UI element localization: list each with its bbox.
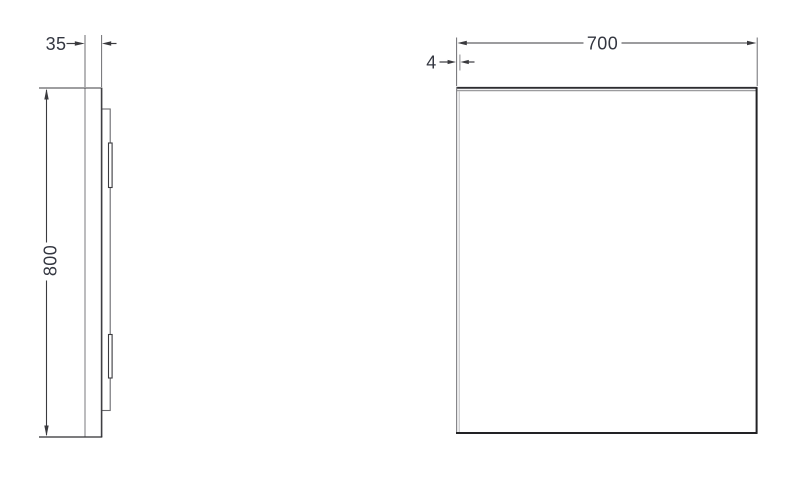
height-arrowhead-top [44, 89, 48, 100]
drawing-page: 35 800 [0, 0, 800, 483]
width-dimension-value: 700 [587, 34, 618, 54]
front-view [456, 87, 758, 434]
front-view-panel-face [457, 88, 757, 433]
height-dimension-value: 800 [41, 245, 61, 276]
side-view-mounting-clip-bottom [109, 335, 113, 379]
depth-arrowhead-right [102, 41, 111, 45]
height-dimension: 800 [41, 89, 61, 437]
height-arrowhead-bottom [44, 426, 48, 437]
edge-arrowhead-right [460, 60, 468, 64]
depth-dimension-value: 35 [46, 34, 67, 54]
edge-dimension-value: 4 [426, 53, 436, 73]
depth-dimension: 35 [46, 34, 117, 87]
width-arrowhead-left [457, 41, 466, 45]
depth-arrowhead-left [75, 41, 85, 45]
width-arrowhead-right [747, 41, 756, 45]
technical-drawing-canvas: 35 800 [0, 0, 800, 483]
edge-thickness-dimension: 4 [426, 53, 474, 73]
width-dimension: 700 [457, 34, 758, 87]
edge-arrowhead-left [448, 60, 456, 64]
side-view-mounting-clip-top [109, 143, 113, 188]
